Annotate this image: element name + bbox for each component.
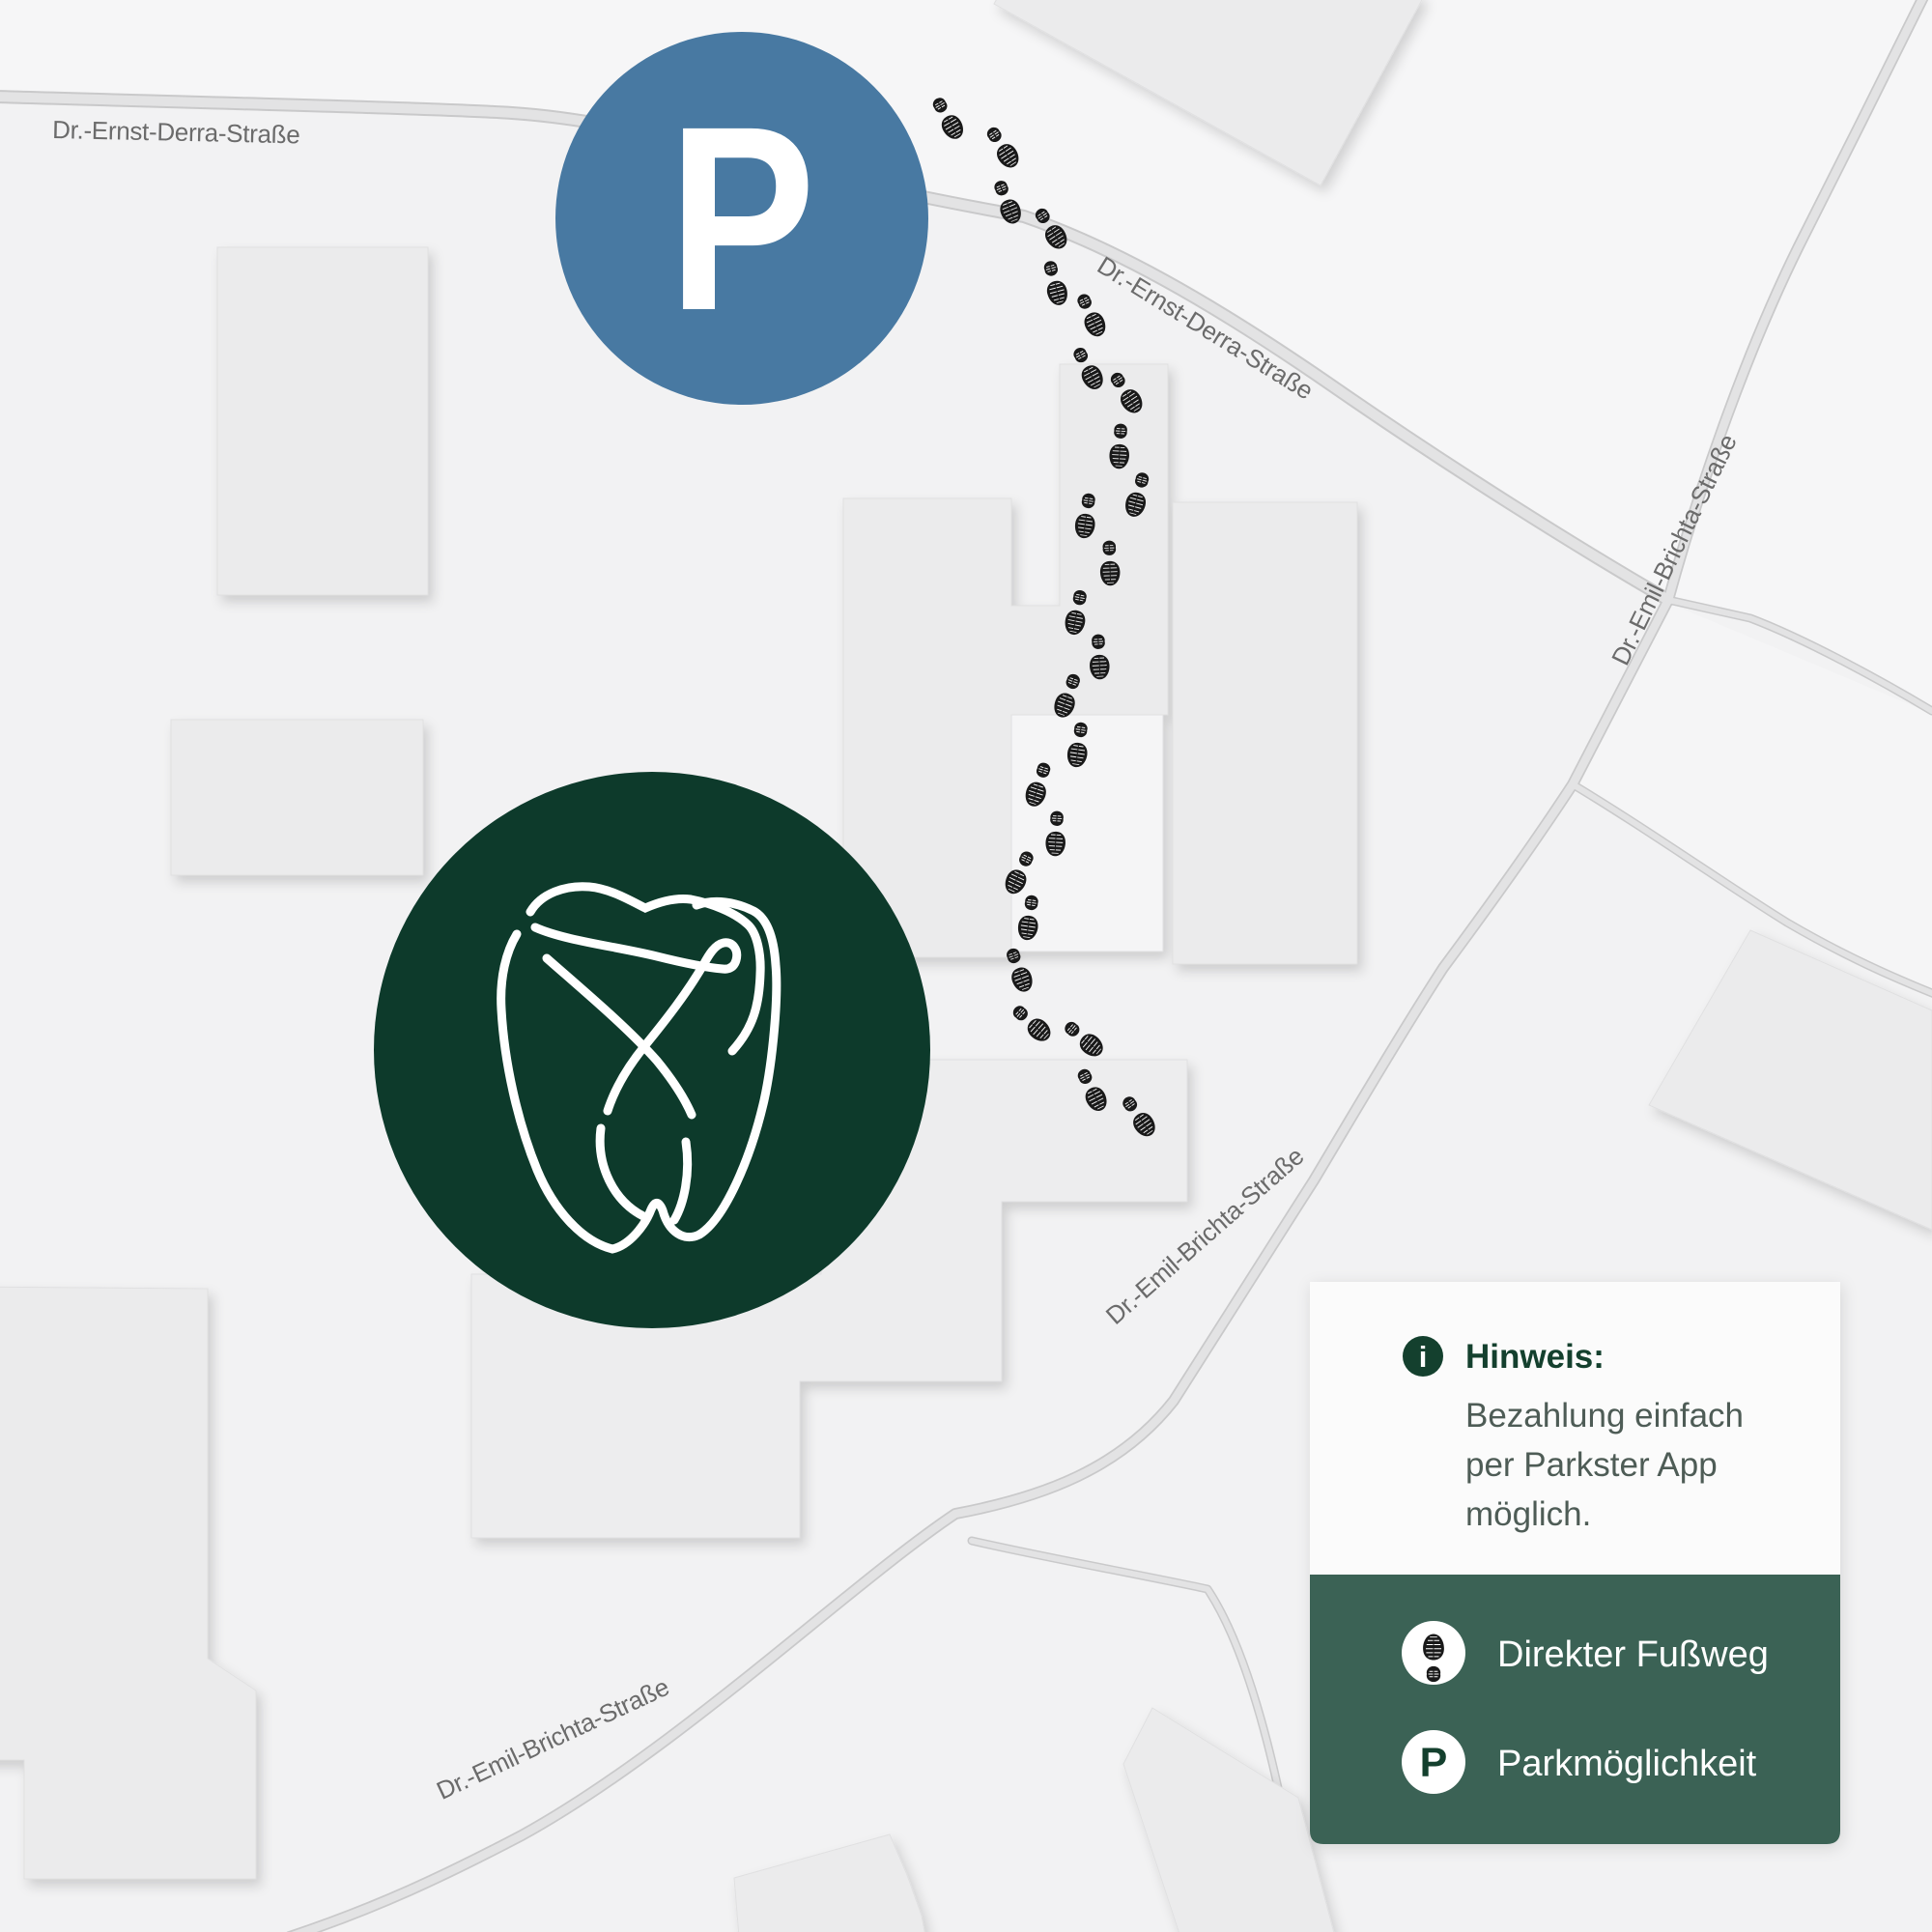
svg-text:i: i (1419, 1340, 1428, 1374)
svg-text:per Parkster App: per Parkster App (1465, 1446, 1718, 1484)
svg-text:P: P (1420, 1740, 1448, 1786)
svg-text:P: P (668, 72, 815, 365)
svg-text:Parkmöglichkeit: Parkmöglichkeit (1497, 1744, 1757, 1784)
svg-text:Bezahlung einfach: Bezahlung einfach (1465, 1397, 1744, 1435)
svg-text:möglich.: möglich. (1465, 1495, 1591, 1533)
svg-text:Dr.-Ernst-Derra-Straße: Dr.-Ernst-Derra-Straße (52, 115, 300, 149)
svg-text:Hinweis:: Hinweis: (1465, 1338, 1605, 1376)
svg-text:Direkter Fußweg: Direkter Fußweg (1497, 1634, 1769, 1675)
